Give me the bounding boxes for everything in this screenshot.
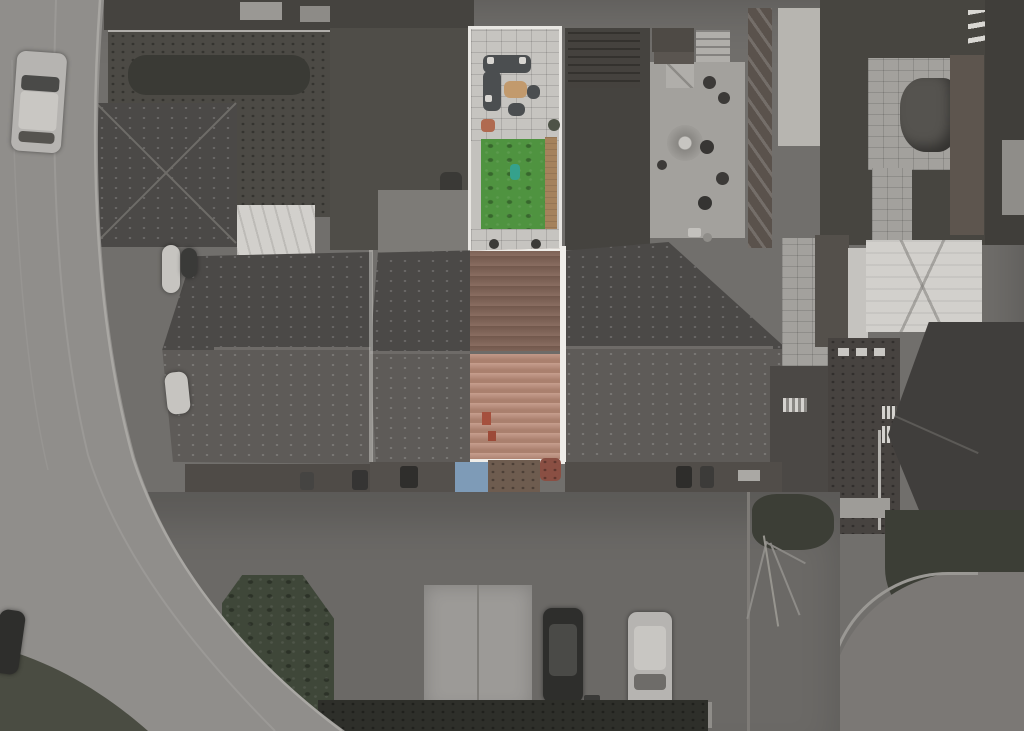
car-roof — [18, 91, 59, 132]
road-layer — [0, 0, 1024, 731]
car-rear-window — [18, 131, 55, 144]
aerial-photo — [0, 0, 1024, 731]
street-car-estate — [11, 50, 68, 153]
car-windshield — [21, 75, 60, 93]
